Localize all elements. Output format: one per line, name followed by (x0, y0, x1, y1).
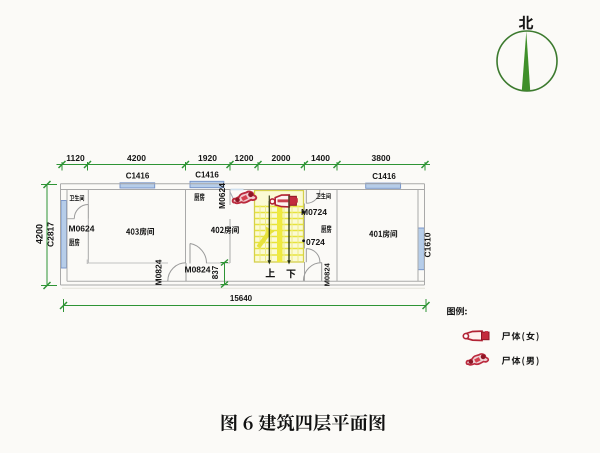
svg-text:C1416: C1416 (372, 172, 396, 181)
svg-text:1400: 1400 (311, 153, 330, 163)
svg-text:M0624: M0624 (217, 183, 227, 209)
svg-text:3800: 3800 (372, 153, 391, 163)
svg-text:837: 837 (211, 265, 220, 279)
svg-text:M0824: M0824 (323, 262, 332, 286)
svg-text:1200: 1200 (235, 153, 254, 163)
svg-text:15640: 15640 (230, 294, 253, 303)
svg-text:1920: 1920 (198, 153, 217, 163)
svg-text:C1610: C1610 (423, 232, 433, 257)
svg-text:C1416: C1416 (195, 171, 219, 180)
svg-text:M0824: M0824 (185, 264, 211, 274)
svg-text:4200: 4200 (34, 224, 44, 244)
svg-text:2000: 2000 (272, 153, 291, 163)
svg-text:4200: 4200 (127, 153, 146, 163)
svg-text:0724: 0724 (306, 237, 325, 247)
svg-text:C2817: C2817 (46, 222, 56, 247)
svg-text:1120: 1120 (66, 153, 85, 163)
svg-text:C1416: C1416 (126, 172, 150, 181)
svg-text:M0624: M0624 (69, 224, 95, 234)
svg-text:M0824: M0824 (154, 259, 164, 285)
